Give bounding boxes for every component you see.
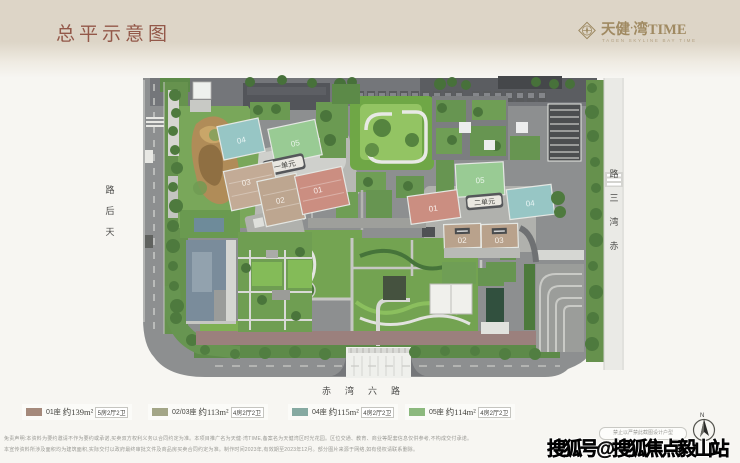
svg-text:N: N (700, 413, 704, 419)
svg-text:03: 03 (495, 236, 505, 245)
svg-text:01: 01 (428, 203, 439, 213)
svg-text:04: 04 (525, 198, 535, 208)
svg-text:02: 02 (458, 236, 468, 245)
svg-text:05: 05 (475, 176, 485, 185)
